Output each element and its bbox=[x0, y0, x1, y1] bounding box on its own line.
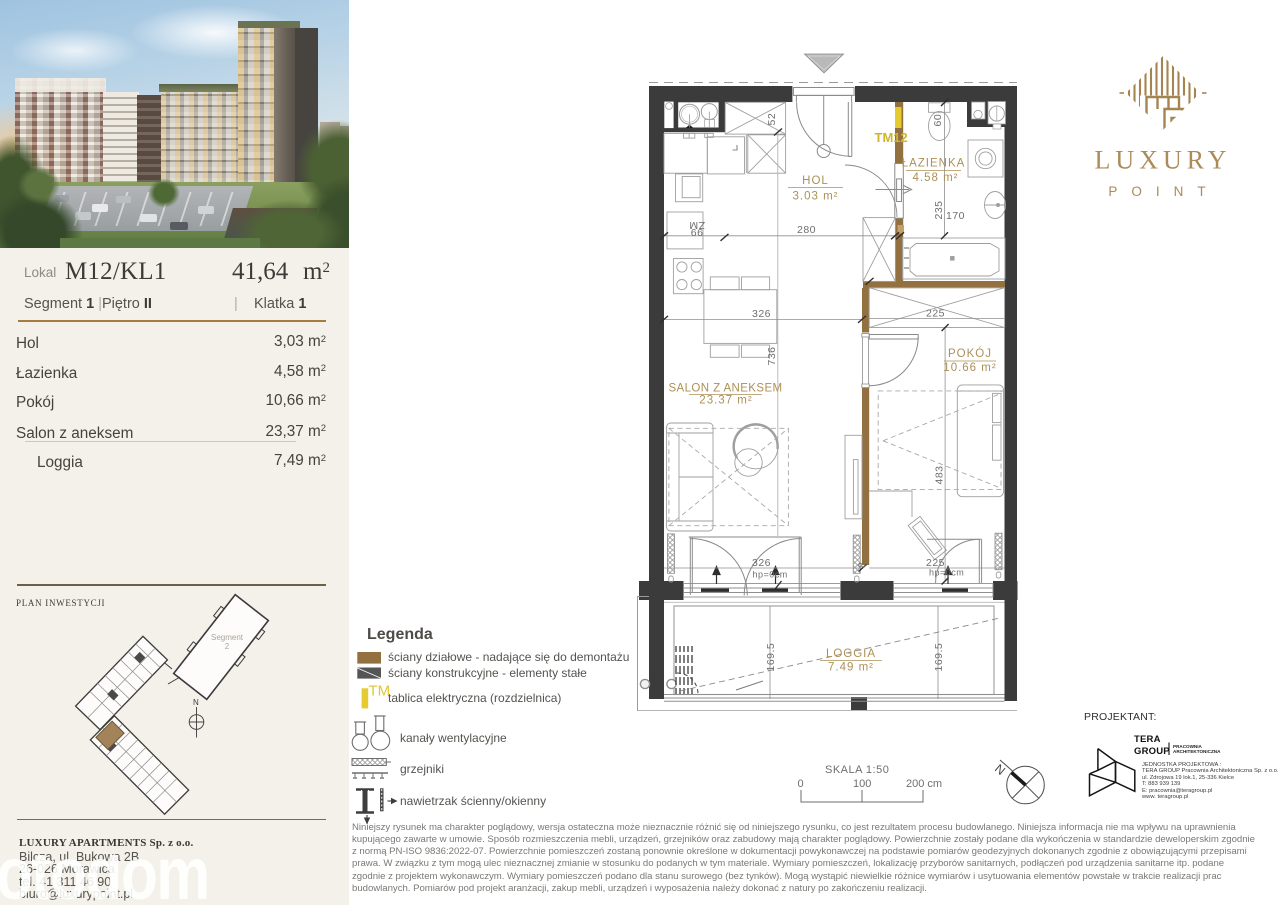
svg-text:Segment: Segment bbox=[211, 633, 244, 642]
svg-text:N: N bbox=[992, 761, 1008, 778]
svg-text:4.58 m²: 4.58 m² bbox=[913, 172, 959, 184]
svg-text:0: 0 bbox=[798, 778, 804, 790]
svg-text:7.49 m²: 7.49 m² bbox=[828, 662, 874, 674]
svg-text:52: 52 bbox=[766, 113, 778, 126]
svg-text:235: 235 bbox=[933, 200, 945, 219]
svg-text:N: N bbox=[193, 698, 199, 707]
svg-text:99: 99 bbox=[690, 226, 703, 238]
svg-text:23.37 m²: 23.37 m² bbox=[699, 395, 752, 407]
svg-text:483: 483 bbox=[934, 465, 946, 484]
svg-text:8: 8 bbox=[857, 562, 869, 568]
svg-text:170: 170 bbox=[946, 210, 965, 222]
svg-text:326: 326 bbox=[752, 308, 771, 320]
svg-text:ŁAZIENKA: ŁAZIENKA bbox=[902, 158, 966, 170]
svg-text:169.5: 169.5 bbox=[765, 643, 777, 672]
svg-text:SKALA 1:50: SKALA 1:50 bbox=[825, 764, 889, 776]
svg-text:736: 736 bbox=[766, 346, 778, 365]
svg-text:hp=0cm: hp=0cm bbox=[753, 570, 788, 580]
svg-text:2: 2 bbox=[225, 642, 230, 651]
svg-text:60: 60 bbox=[932, 114, 944, 127]
svg-text:100: 100 bbox=[853, 778, 871, 790]
svg-text:SALON Z ANEKSEM: SALON Z ANEKSEM bbox=[668, 383, 782, 395]
svg-text:200 cm: 200 cm bbox=[906, 778, 942, 790]
svg-text:HOL: HOL bbox=[802, 175, 829, 187]
svg-text:225: 225 bbox=[926, 308, 945, 320]
svg-text:POKÓJ: POKÓJ bbox=[948, 347, 992, 360]
svg-text:LUXURY: LUXURY bbox=[1095, 146, 1232, 175]
svg-text:TM: TM bbox=[369, 683, 391, 700]
svg-text:POINT: POINT bbox=[1108, 184, 1219, 199]
svg-text:LOGGIA: LOGGIA bbox=[826, 648, 876, 660]
svg-text:TM12: TM12 bbox=[875, 130, 908, 145]
svg-text:280: 280 bbox=[797, 224, 816, 236]
svg-text:326: 326 bbox=[752, 557, 771, 569]
svg-text:10.66 m²: 10.66 m² bbox=[943, 362, 996, 374]
svg-text:3.03 m²: 3.03 m² bbox=[793, 191, 839, 203]
svg-text:hp=0cm: hp=0cm bbox=[929, 568, 964, 578]
svg-text:169.5: 169.5 bbox=[933, 643, 945, 672]
